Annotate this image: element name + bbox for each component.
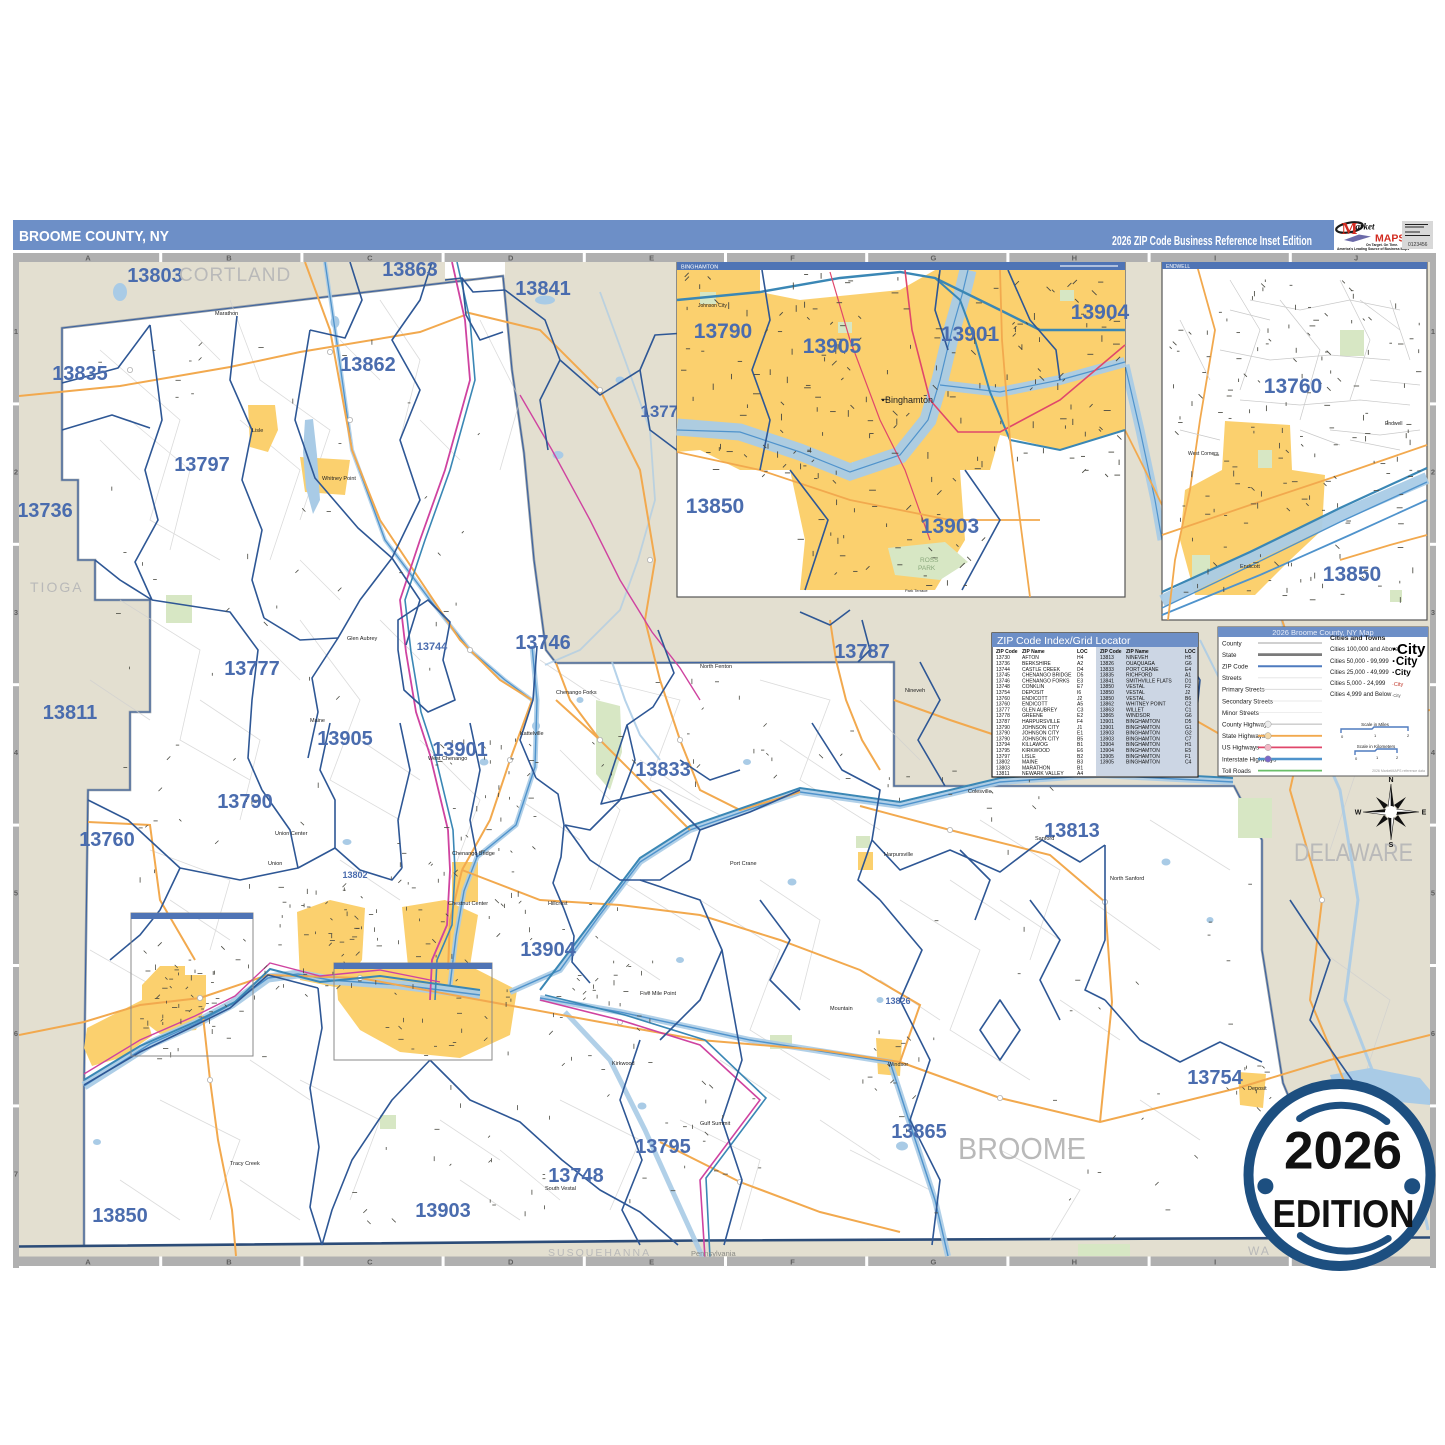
svg-text:C4: C4	[1185, 760, 1192, 766]
svg-text:13777: 13777	[224, 658, 280, 680]
svg-text:North Fenton: North Fenton	[700, 664, 732, 670]
svg-text:1: 1	[1431, 327, 1435, 336]
svg-text:13744: 13744	[417, 641, 448, 653]
svg-text:13760: 13760	[79, 829, 135, 851]
svg-text:J: J	[1354, 254, 1358, 263]
svg-text:County Highways: County Highways	[1222, 722, 1270, 729]
svg-text:America's Leading Source of Bu: America's Leading Source of Business Map…	[1337, 247, 1409, 251]
svg-text:Harpursville: Harpursville	[884, 852, 913, 858]
svg-text:13736: 13736	[17, 500, 73, 522]
svg-text:Cities 4,999 and Below: Cities 4,999 and Below	[1330, 692, 1392, 698]
svg-text:County: County	[1222, 640, 1243, 647]
svg-text:Union: Union	[268, 861, 282, 867]
svg-text:ROSS: ROSS	[920, 557, 939, 564]
svg-text:US Highways: US Highways	[1222, 745, 1259, 752]
svg-text:E: E	[1422, 810, 1427, 817]
svg-text:Chenango Forks: Chenango Forks	[556, 690, 597, 696]
svg-text:Five Mile Point: Five Mile Point	[640, 991, 677, 997]
svg-text:13811: 13811	[996, 771, 1010, 777]
svg-text:Chenango Bridge: Chenango Bridge	[452, 851, 495, 857]
svg-text:WA: WA	[1248, 1244, 1271, 1258]
svg-text:D: D	[508, 254, 514, 263]
svg-text:·City: ·City	[1392, 682, 1404, 688]
svg-text:2026 ZIP Code Business Referen: 2026 ZIP Code Business Reference Inset E…	[1112, 234, 1312, 248]
svg-text:13835: 13835	[52, 363, 108, 385]
svg-text:Deposit: Deposit	[1248, 1086, 1267, 1092]
svg-text:13850: 13850	[686, 495, 744, 518]
svg-text:13811: 13811	[43, 702, 98, 724]
svg-text:13802: 13802	[342, 870, 367, 880]
svg-text:13863: 13863	[382, 259, 438, 281]
svg-text:ZIP Code: ZIP Code	[996, 649, 1018, 655]
svg-text:E: E	[649, 254, 654, 263]
svg-text:A: A	[85, 1258, 91, 1267]
svg-text:13905: 13905	[317, 728, 373, 750]
svg-text:TIOGA: TIOGA	[30, 579, 84, 595]
svg-text:W: W	[1355, 810, 1362, 817]
svg-text:ZIP Name: ZIP Name	[1022, 649, 1045, 655]
svg-text:A: A	[85, 254, 91, 263]
svg-text:Gulf Summit: Gulf Summit	[700, 1121, 731, 1127]
svg-text:2026 MarketMAPS reference data: 2026 MarketMAPS reference data	[1372, 769, 1425, 773]
svg-text:G: G	[930, 1258, 936, 1267]
svg-text:Johnson City: Johnson City	[698, 303, 727, 309]
svg-text:ZIP Name: ZIP Name	[1126, 649, 1149, 655]
svg-text:C: C	[367, 254, 373, 263]
svg-text:West Corners: West Corners	[1188, 451, 1219, 457]
svg-text:13787: 13787	[834, 641, 890, 663]
svg-text:Scale in Miles: Scale in Miles	[1361, 722, 1390, 727]
svg-text:13754: 13754	[1187, 1067, 1243, 1089]
svg-text:Secondary Streets: Secondary Streets	[1222, 698, 1273, 705]
svg-text:Mountain: Mountain	[830, 1006, 853, 1012]
svg-text:2: 2	[14, 467, 18, 476]
svg-text:Cities 25,000 - 49,999: Cities 25,000 - 49,999	[1330, 670, 1389, 676]
svg-text:F: F	[790, 1258, 795, 1267]
svg-text:·City: ·City	[1392, 667, 1411, 677]
svg-text:Cities and Towns: Cities and Towns	[1330, 635, 1386, 642]
svg-text:Kattelville: Kattelville	[520, 731, 544, 737]
svg-text:6: 6	[14, 1029, 18, 1038]
svg-text:H: H	[1072, 254, 1077, 263]
svg-text:PARK: PARK	[918, 565, 936, 572]
svg-text:13904: 13904	[1071, 301, 1130, 324]
svg-text:Minor Streets: Minor Streets	[1222, 710, 1259, 717]
svg-text:ZIP Code: ZIP Code	[1222, 664, 1249, 671]
svg-text:NEWARK VALLEY: NEWARK VALLEY	[1022, 771, 1064, 777]
svg-text:7: 7	[14, 1169, 18, 1178]
svg-text:C: C	[367, 1258, 373, 1267]
svg-text:Sanford: Sanford	[1035, 836, 1054, 842]
svg-text:LOC: LOC	[1185, 649, 1196, 655]
svg-text:DELAWARE: DELAWARE	[1294, 839, 1413, 867]
svg-text:13790: 13790	[694, 320, 752, 343]
svg-text:0123456: 0123456	[1408, 242, 1428, 248]
svg-text:13841: 13841	[515, 278, 571, 300]
svg-text:CORTLAND: CORTLAND	[179, 265, 291, 286]
svg-text:13903: 13903	[921, 515, 979, 538]
svg-text:Endicott: Endicott	[1240, 564, 1260, 570]
svg-text:Streets: Streets	[1222, 675, 1242, 682]
svg-text:ENDWELL: ENDWELL	[1166, 264, 1190, 270]
svg-text:Port Crane: Port Crane	[730, 861, 757, 867]
svg-text:Cities 100,000 and Above: Cities 100,000 and Above	[1330, 647, 1399, 653]
svg-text:D: D	[508, 1258, 514, 1267]
svg-text:5: 5	[14, 889, 18, 898]
svg-text:5: 5	[1431, 889, 1435, 898]
svg-text:Whitney Point: Whitney Point	[322, 476, 356, 482]
svg-text:Maine: Maine	[310, 718, 325, 724]
svg-text:13901: 13901	[941, 323, 1000, 346]
svg-text:F: F	[790, 254, 795, 263]
svg-text:South Vestal: South Vestal	[545, 1186, 576, 1192]
svg-text:13905: 13905	[1100, 760, 1114, 766]
svg-text:Union Center: Union Center	[275, 831, 308, 837]
svg-text:13904: 13904	[520, 939, 576, 961]
svg-text:Colesville: Colesville	[968, 789, 992, 795]
svg-text:I: I	[1214, 254, 1216, 263]
svg-text:Chestnut Center: Chestnut Center	[448, 901, 488, 907]
svg-text:A4: A4	[1077, 771, 1083, 777]
svg-text:13862: 13862	[340, 354, 396, 376]
svg-text:ZIP Code Index/Grid Locator: ZIP Code Index/Grid Locator	[997, 635, 1131, 647]
svg-text:Cities 5,000 - 24,999: Cities 5,000 - 24,999	[1330, 681, 1386, 687]
svg-text:B: B	[226, 254, 232, 263]
svg-text:13797: 13797	[174, 454, 230, 476]
svg-text:Nineveh: Nineveh	[905, 688, 925, 694]
svg-text:3: 3	[1431, 608, 1435, 617]
svg-text:Windsor: Windsor	[888, 1062, 908, 1068]
svg-text:State: State	[1222, 652, 1237, 659]
svg-text:13905: 13905	[803, 335, 862, 358]
svg-text:Marathon: Marathon	[215, 311, 238, 317]
svg-text:Kirkwood: Kirkwood	[612, 1061, 635, 1067]
svg-text:arket: arket	[1356, 222, 1375, 232]
svg-text:E: E	[649, 1258, 654, 1267]
svg-text:13850: 13850	[1323, 563, 1381, 586]
svg-text:Park Terrace: Park Terrace	[905, 588, 928, 593]
svg-text:S: S	[1389, 842, 1394, 849]
svg-text:2026: 2026	[1284, 1122, 1402, 1181]
svg-text:BINGHAMTON: BINGHAMTON	[681, 265, 718, 271]
svg-text:B: B	[226, 1258, 232, 1267]
svg-text:H: H	[1072, 1258, 1077, 1267]
svg-text:13903: 13903	[415, 1200, 471, 1222]
svg-text:13865: 13865	[891, 1121, 947, 1143]
svg-text:Glen Aubrey: Glen Aubrey	[347, 636, 378, 642]
svg-text:Toll Roads: Toll Roads	[1222, 768, 1251, 775]
svg-text:Scale in Kilometers: Scale in Kilometers	[1357, 744, 1396, 749]
svg-text:Primary Streets: Primary Streets	[1222, 687, 1265, 694]
svg-text:EDITION: EDITION	[1273, 1193, 1415, 1236]
svg-text:N: N	[1388, 777, 1393, 784]
svg-text:Binghamton: Binghamton	[885, 395, 933, 405]
svg-text:BROOME COUNTY, NY: BROOME COUNTY, NY	[19, 228, 169, 245]
svg-text:13748: 13748	[548, 1165, 604, 1187]
svg-text:3: 3	[14, 608, 18, 617]
svg-text:Tracy Creek: Tracy Creek	[230, 1161, 260, 1167]
svg-text:BROOME: BROOME	[958, 1131, 1086, 1166]
svg-text:·City: ·City	[1392, 693, 1402, 698]
svg-text:North Sanford: North Sanford	[1110, 876, 1144, 882]
svg-text:6: 6	[1431, 1029, 1435, 1038]
svg-text:BINGHAMTON: BINGHAMTON	[1126, 760, 1160, 766]
svg-text:13795: 13795	[635, 1136, 691, 1158]
svg-text:Cities 50,000 - 99,999: Cities 50,000 - 99,999	[1330, 659, 1389, 665]
svg-text:13850: 13850	[92, 1205, 148, 1227]
svg-text:1: 1	[14, 327, 18, 336]
svg-text:I: I	[1214, 1258, 1216, 1267]
svg-text:Endwell: Endwell	[1385, 421, 1403, 427]
svg-text:ZIP Code: ZIP Code	[1100, 649, 1122, 655]
svg-text:Lisle: Lisle	[252, 428, 263, 434]
svg-text:LOC: LOC	[1077, 649, 1088, 655]
svg-text:2: 2	[1431, 467, 1435, 476]
svg-text:13746: 13746	[515, 632, 571, 654]
svg-text:West Chenango: West Chenango	[428, 756, 467, 762]
svg-text:13826: 13826	[885, 996, 910, 1006]
svg-text:Hillcrest: Hillcrest	[548, 901, 568, 907]
svg-text:G: G	[930, 254, 936, 263]
svg-text:13803: 13803	[127, 265, 183, 287]
svg-text:13760: 13760	[1264, 375, 1322, 398]
svg-text:13833: 13833	[635, 759, 691, 781]
svg-text:13790: 13790	[217, 791, 273, 813]
